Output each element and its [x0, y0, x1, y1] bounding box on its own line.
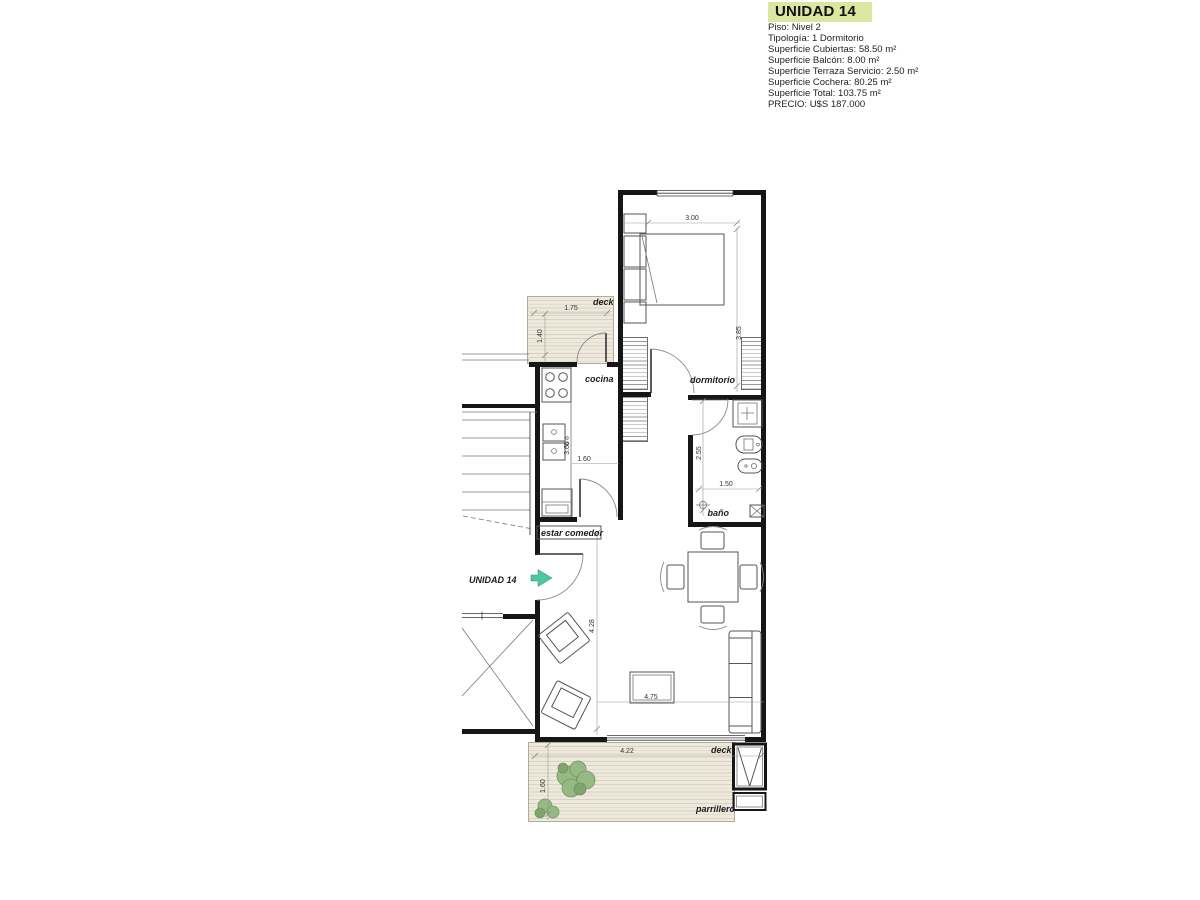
dining-table — [661, 527, 764, 630]
dim-bedroom-width: 3.00 — [685, 215, 699, 222]
area-covered: Superficie Cubiertas: 58.50 m² — [768, 44, 1048, 55]
bathroom-vanity — [733, 400, 762, 427]
bed — [624, 214, 724, 323]
dim-balcony-width: 4.22 — [620, 748, 634, 755]
dim-balcony-height: 1.60 — [540, 779, 547, 793]
label-deck-balcony: deck — [711, 745, 733, 755]
bedroom-window — [657, 190, 733, 196]
label-living-box: estar comedor — [537, 526, 604, 539]
label-bedroom: dormitorio — [690, 375, 735, 385]
dim-kitchen-width: 1.60 — [577, 456, 591, 463]
stove — [542, 368, 571, 402]
bathroom-door — [692, 399, 728, 435]
dim-bath-width: 1.50 — [719, 481, 733, 488]
label-living: estar comedor — [541, 528, 604, 538]
void-cross — [462, 620, 533, 726]
unit-price: PRECIO: U$S 187.000 — [768, 99, 1048, 110]
label-bathroom: baño — [708, 508, 730, 518]
unit-floor: Piso: Nivel 2 — [768, 22, 1048, 33]
toilet — [736, 436, 762, 453]
floor-plan-svg: 3.00 3.85 1.75 1.40 1.60 3.60 2.55 1.50 … — [450, 175, 780, 835]
label-kitchen: cocina — [585, 374, 614, 384]
kitchen-door — [580, 479, 617, 517]
entry-marker: UNIDAD 14 — [469, 570, 552, 587]
bedroom-door — [651, 349, 694, 393]
label-bbq: parrillero — [695, 804, 736, 814]
label-deck-terrace: deck — [593, 297, 615, 307]
area-total: Superficie Total: 103.75 m² — [768, 88, 1048, 99]
kitchen-cabinet — [542, 489, 572, 516]
living-sliding-door — [607, 736, 745, 741]
dim-living-width: 4.75 — [644, 694, 658, 701]
dim-deck-height: 1.40 — [537, 329, 544, 343]
area-garage: Superficie Cochera: 80.25 m² — [768, 77, 1048, 88]
plant — [557, 761, 595, 797]
dim-deck-width: 1.75 — [564, 305, 578, 312]
void-railing — [462, 612, 503, 620]
unit-title: UNIDAD 14 — [768, 2, 872, 22]
walls — [462, 190, 766, 742]
sofa — [729, 631, 761, 733]
dim-living-height: 4.28 — [589, 619, 596, 633]
bbq-grill — [734, 744, 766, 810]
armchair — [541, 680, 591, 729]
entry-arrow-icon — [531, 570, 552, 587]
unit-info-panel: UNIDAD 14 Piso: Nivel 2 Tipología: 1 Dor… — [768, 2, 1048, 110]
area-service: Superficie Terraza Servicio: 2.50 m² — [768, 66, 1048, 77]
stairs — [462, 412, 533, 535]
unit-typology: Tipología: 1 Dormitorio — [768, 33, 1048, 44]
floor-plan-page: UNIDAD 14 Piso: Nivel 2 Tipología: 1 Dor… — [0, 0, 1200, 900]
dim-bath-height: 2.55 — [696, 446, 703, 460]
dim-kitchen-length: 3.60 — [564, 441, 571, 455]
armchair — [538, 612, 590, 664]
area-balcony: Superficie Balcón: 8.00 m² — [768, 55, 1048, 66]
bidet — [738, 459, 762, 473]
label-unit-entry: UNIDAD 14 — [469, 575, 517, 585]
dim-bedroom-height: 3.85 — [736, 326, 743, 340]
deck-door — [577, 333, 606, 362]
